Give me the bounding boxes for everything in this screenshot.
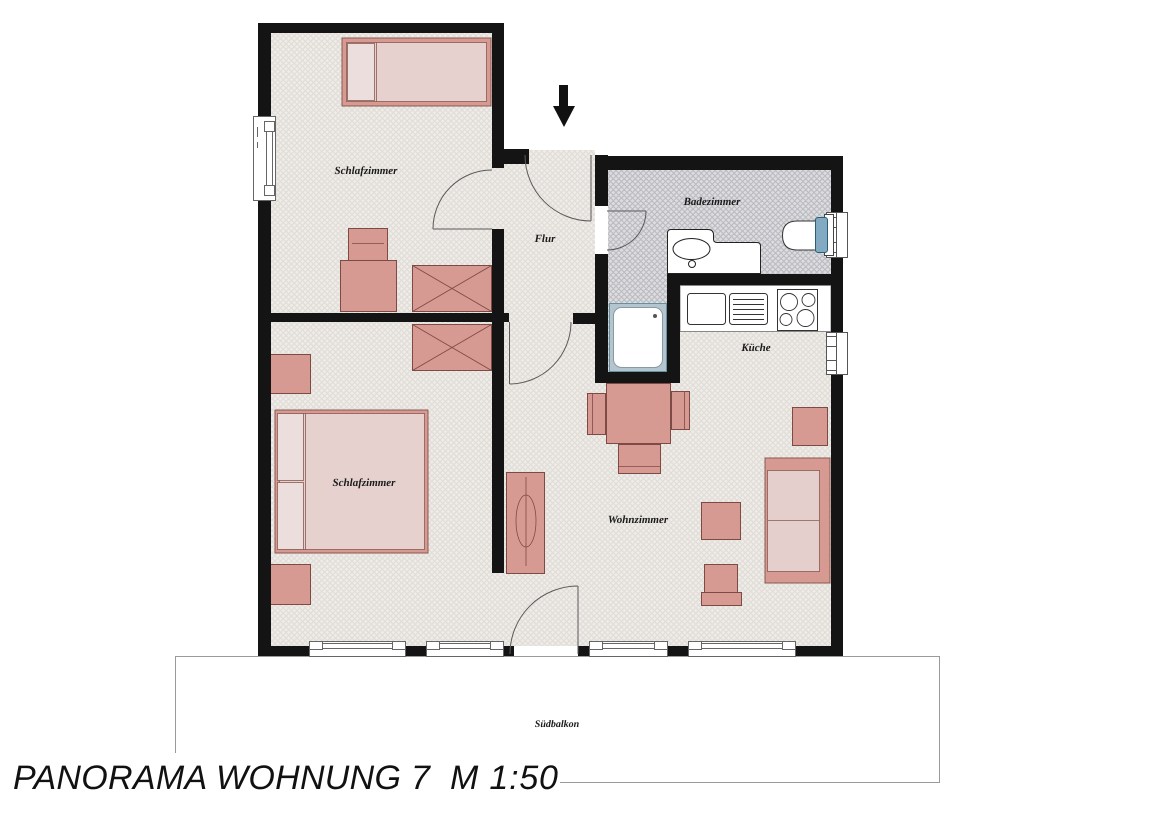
svg-text:Südbalkon: Südbalkon xyxy=(535,719,580,730)
svg-text:Badezimmer: Badezimmer xyxy=(683,196,742,208)
svg-text:Küche: Küche xyxy=(740,342,770,354)
svg-text:Wohnzimmer: Wohnzimmer xyxy=(608,514,669,526)
svg-text:Schlafzimmer: Schlafzimmer xyxy=(333,477,397,489)
svg-text:PANORAMA WOHNUNG 7: PANORAMA WOHNUNG 7 xyxy=(13,759,431,797)
svg-text:Schlafzimmer: Schlafzimmer xyxy=(335,165,399,177)
svg-text:M 1:50: M 1:50 xyxy=(450,759,559,797)
svg-text:Flur: Flur xyxy=(534,233,557,245)
